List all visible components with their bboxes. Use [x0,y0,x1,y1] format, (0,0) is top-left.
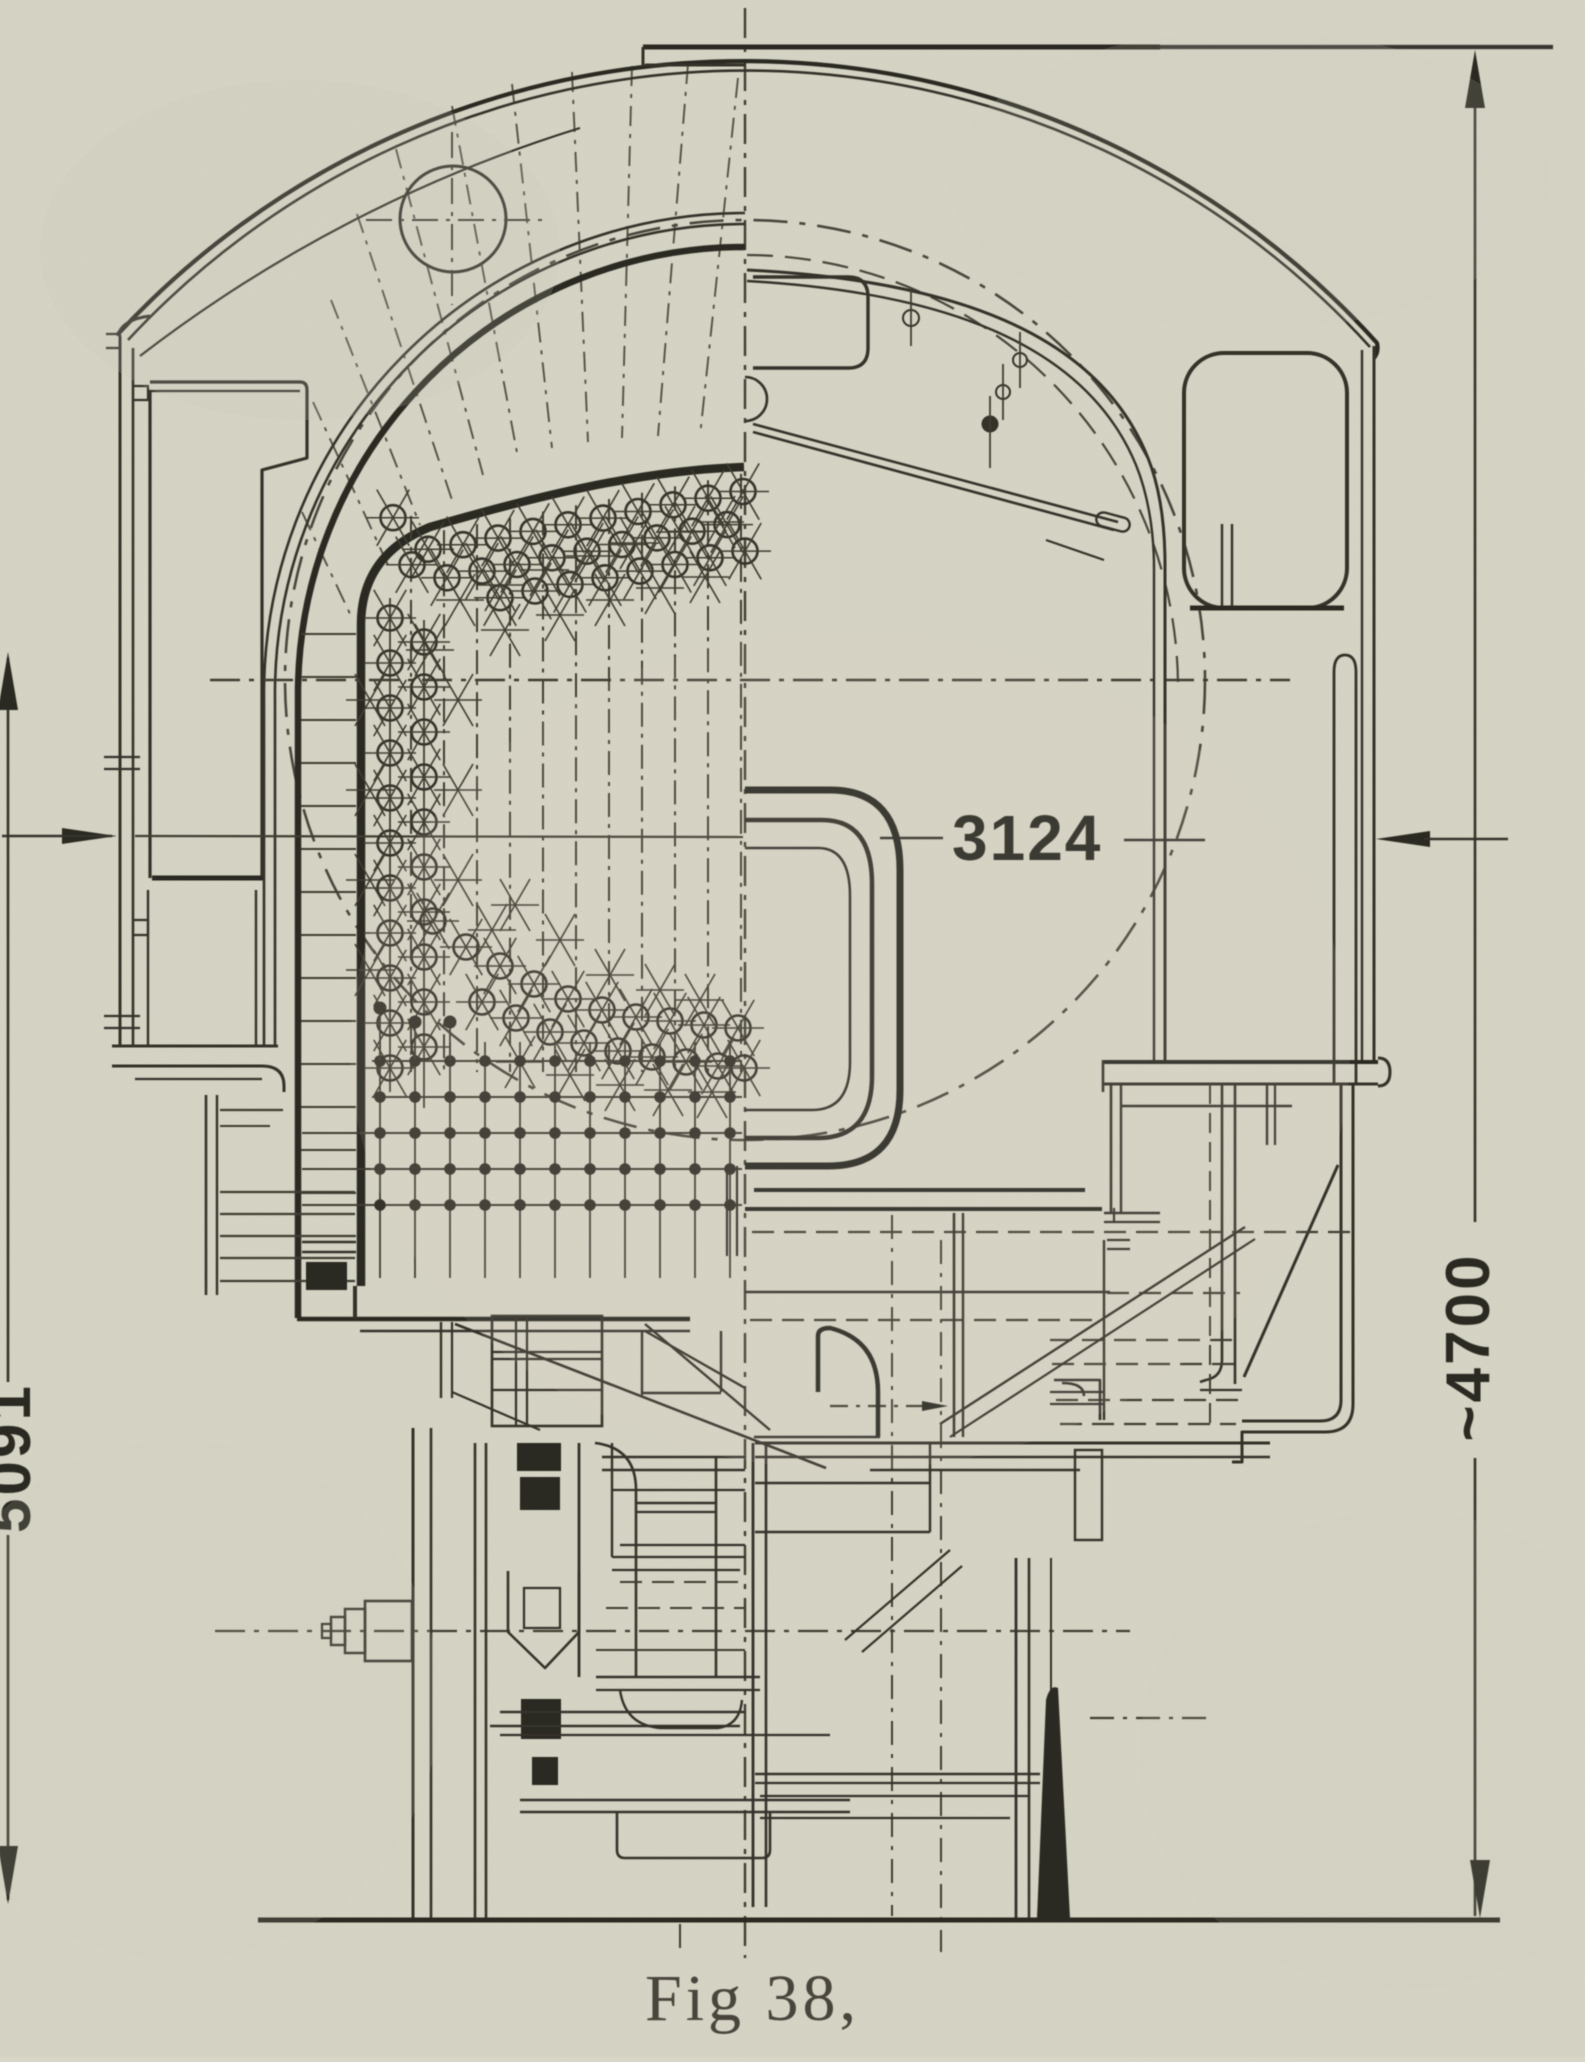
svg-text:Fig 38,: Fig 38, [645,1962,860,2035]
svg-text:~4700: ~4700 [1434,1252,1503,1441]
